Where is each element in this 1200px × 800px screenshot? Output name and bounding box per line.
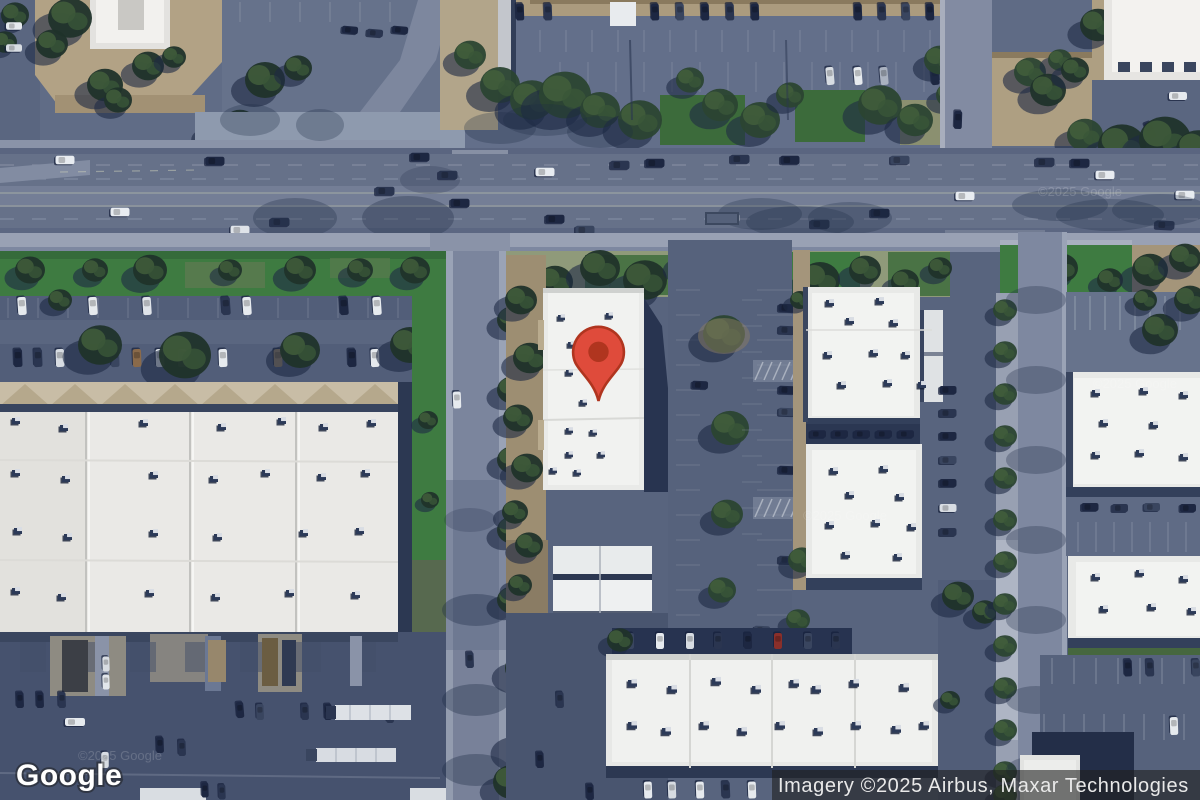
svg-text:©2025 Google: ©2025 Google <box>1038 184 1122 199</box>
svg-text:©2025 Google: ©2025 Google <box>1093 376 1177 391</box>
svg-text:©2025 Google: ©2025 Google <box>803 508 887 523</box>
svg-text:Imagery ©2025 Airbus, Maxar Te: Imagery ©2025 Airbus, Maxar Technologies <box>778 775 1189 797</box>
svg-text:Google: Google <box>16 759 122 792</box>
